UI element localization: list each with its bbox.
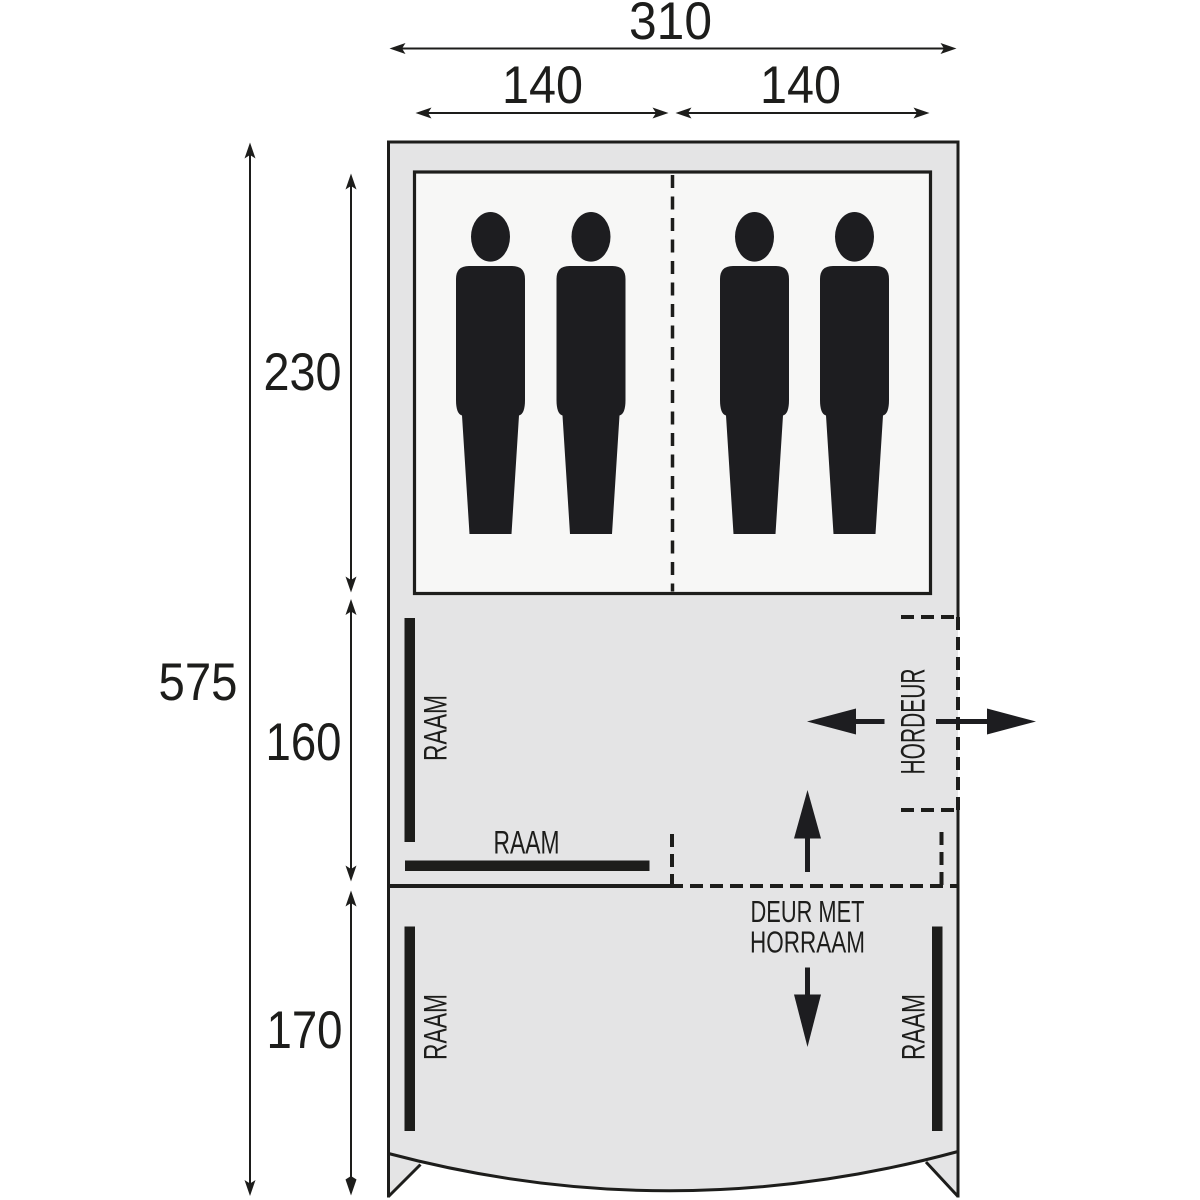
svg-text:170: 170: [267, 1001, 343, 1060]
svg-text:310: 310: [629, 0, 712, 51]
svg-text:HORRAAM: HORRAAM: [750, 925, 865, 960]
svg-text:RAAM: RAAM: [418, 695, 454, 761]
svg-text:RAAM: RAAM: [896, 994, 932, 1060]
svg-text:RAAM: RAAM: [418, 994, 454, 1060]
svg-text:575: 575: [159, 653, 238, 712]
svg-text:HORDEUR: HORDEUR: [895, 669, 933, 775]
svg-text:160: 160: [266, 713, 342, 772]
svg-text:140: 140: [502, 56, 583, 115]
svg-text:140: 140: [760, 56, 841, 115]
svg-text:230: 230: [264, 343, 342, 402]
svg-text:RAAM: RAAM: [494, 825, 560, 861]
